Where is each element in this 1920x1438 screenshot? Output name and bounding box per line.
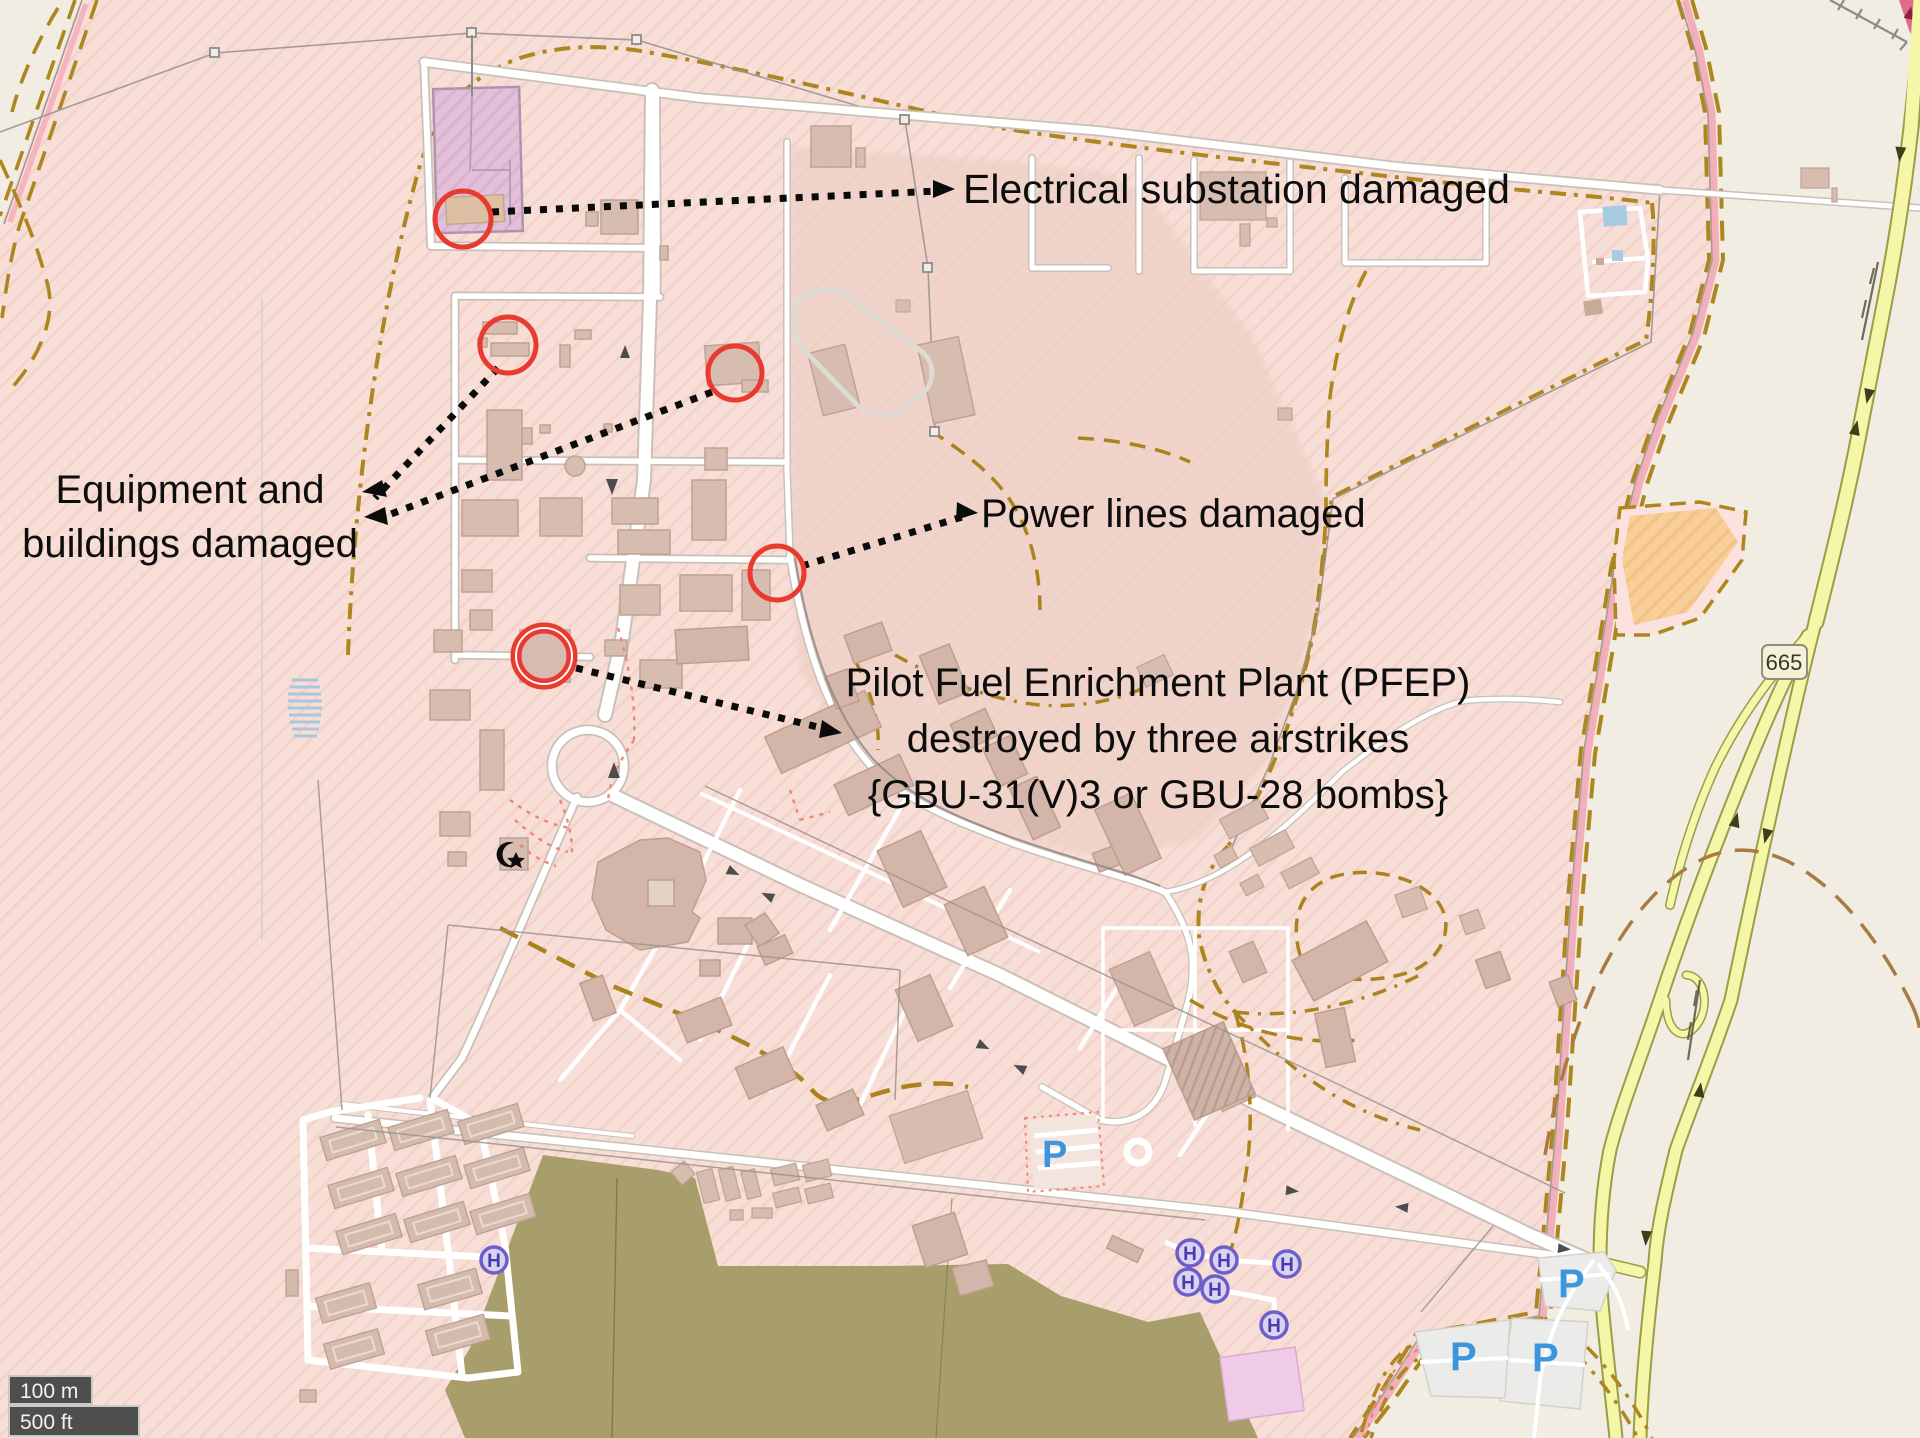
- svg-text:100 m: 100 m: [20, 1380, 78, 1403]
- svg-text:buildings damaged: buildings damaged: [22, 522, 358, 566]
- svg-text:H: H: [1208, 1280, 1222, 1301]
- svg-text:H: H: [1181, 1273, 1195, 1294]
- svg-text:H: H: [1280, 1255, 1294, 1276]
- svg-text:H: H: [1267, 1316, 1281, 1337]
- svg-text:Electrical substation damaged: Electrical substation damaged: [963, 166, 1510, 212]
- svg-text:{GBU-31(V)3 or GBU-28 bombs}: {GBU-31(V)3 or GBU-28 bombs}: [868, 773, 1448, 817]
- svg-text:H: H: [1217, 1251, 1231, 1272]
- svg-text:H: H: [1183, 1244, 1197, 1265]
- svg-text:Power lines damaged: Power lines damaged: [981, 492, 1366, 536]
- svg-text:P: P: [1532, 1336, 1559, 1380]
- svg-text:H: H: [487, 1251, 501, 1272]
- svg-text:destroyed by three airstrikes: destroyed by three airstrikes: [907, 717, 1409, 761]
- svg-text:Equipment and: Equipment and: [55, 468, 324, 512]
- svg-text:665: 665: [1766, 650, 1803, 675]
- svg-text:500 ft: 500 ft: [20, 1411, 73, 1434]
- svg-text:Pilot Fuel Enrichment Plant (P: Pilot Fuel Enrichment Plant (PFEP): [846, 661, 1471, 705]
- svg-text:P: P: [1042, 1134, 1067, 1176]
- svg-text:P: P: [1450, 1335, 1477, 1379]
- svg-text:P: P: [1558, 1262, 1585, 1306]
